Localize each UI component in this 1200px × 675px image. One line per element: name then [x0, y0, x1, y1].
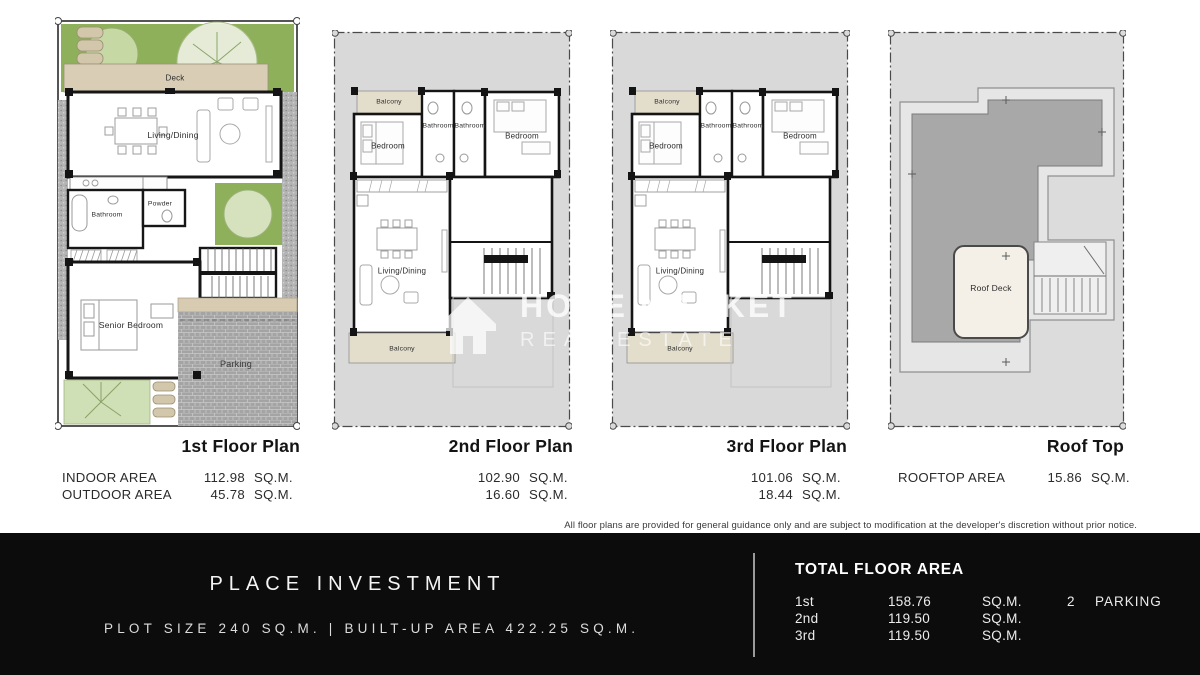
total-row-2nd: 2nd 119.50 SQ.M.: [795, 611, 1185, 628]
area-label: INDOOR AREA: [62, 470, 157, 485]
plan-1st-floor: Deck Living/Dining Powder Bathroom Senio…: [55, 14, 300, 430]
plan-title-1st: 1st Floor Plan: [90, 436, 300, 457]
room-label-balcony-bottom: Balcony: [389, 346, 415, 353]
area-line: 16.60 SQ.M.: [440, 486, 575, 503]
room-label-bedroom-left: Bedroom: [649, 142, 683, 151]
area-line: OUTDOOR AREA 45.78 SQ.M.: [62, 486, 300, 503]
floor-name: 3rd: [795, 628, 815, 643]
area-line: ROOFTOP AREA 15.86 SQ.M.: [898, 469, 1137, 486]
room-label-roof-deck: Roof Deck: [970, 283, 1011, 293]
room-label-deck: Deck: [165, 74, 184, 83]
room-label-bathroom-right: Bathroom: [732, 123, 763, 130]
area-value: 112.98: [204, 470, 245, 485]
area-block-1st: INDOOR AREA 112.98 SQ.M. OUTDOOR AREA 45…: [62, 469, 300, 503]
parking-count: 2: [1067, 594, 1075, 609]
area-label: OUTDOOR AREA: [62, 487, 172, 502]
area-unit: SQ.M.: [802, 470, 848, 485]
area-unit: SQ.M.: [529, 470, 575, 485]
floor-name: 2nd: [795, 611, 818, 626]
plan-2nd-floor: Balcony Bedroom Bathroom Bathroom Bedroo…: [332, 30, 572, 430]
room-label-balcony-bottom: Balcony: [667, 346, 693, 353]
total-row-3rd: 3rd 119.50 SQ.M.: [795, 628, 1185, 645]
floor-area-unit: SQ.M.: [982, 611, 1022, 626]
area-block-2nd: 102.90 SQ.M. 16.60 SQ.M.: [440, 469, 575, 503]
area-line: 101.06 SQ.M.: [713, 469, 848, 486]
brand-title: PLACE INVESTMENT: [95, 573, 620, 596]
area-value: 16.60: [485, 487, 520, 502]
footer-bar: PLACE INVESTMENT PLOT SIZE 240 SQ.M. | B…: [0, 533, 1200, 675]
area-value: 101.06: [751, 470, 793, 485]
room-label-senior-bedroom: Senior Bedroom: [99, 320, 163, 330]
area-unit: SQ.M.: [529, 487, 575, 502]
plan-roof-top: Roof Deck: [888, 30, 1126, 430]
floor-area-unit: SQ.M.: [982, 594, 1022, 609]
total-row-1st: 1st 158.76 SQ.M. 2 PARKING: [795, 594, 1185, 611]
plan-2nd-floor-drawing: [332, 30, 572, 430]
footer-divider: [753, 553, 755, 657]
area-line: INDOOR AREA 112.98 SQ.M.: [62, 469, 300, 486]
room-label-bathroom-right: Bathroom: [454, 123, 485, 130]
area-value: 15.86: [1047, 470, 1082, 485]
plan-3rd-floor-drawing: [610, 30, 850, 430]
room-label-living-dining: Living/Dining: [656, 267, 704, 276]
area-line: 18.44 SQ.M.: [713, 486, 848, 503]
area-block-3rd: 101.06 SQ.M. 18.44 SQ.M.: [713, 469, 848, 503]
area-unit: SQ.M.: [802, 487, 848, 502]
area-value: 102.90: [478, 470, 520, 485]
area-unit: SQ.M.: [254, 487, 300, 502]
disclaimer-text: All floor plans are provided for general…: [564, 520, 1137, 531]
room-label-parking: Parking: [220, 359, 252, 369]
room-label-bathroom: Bathroom: [91, 212, 122, 219]
plan-roof-top-drawing: [888, 30, 1126, 430]
total-floor-area-table: 1st 158.76 SQ.M. 2 PARKING 2nd 119.50 SQ…: [795, 594, 1185, 645]
floorplan-sheet: Deck Living/Dining Powder Bathroom Senio…: [0, 0, 1200, 675]
room-label-bathroom-left: Bathroom: [700, 123, 731, 130]
room-label-bathroom-left: Bathroom: [422, 123, 453, 130]
room-label-living-dining: Living/Dining: [378, 267, 426, 276]
floor-area-value: 158.76: [888, 594, 931, 609]
room-label-balcony-top: Balcony: [376, 99, 402, 106]
room-label-bedroom-left: Bedroom: [371, 142, 405, 151]
plan-title-2nd: 2nd Floor Plan: [363, 436, 573, 457]
total-floor-area-title: TOTAL FLOOR AREA: [795, 561, 964, 579]
floor-area-unit: SQ.M.: [982, 628, 1022, 643]
plot-info: PLOT SIZE 240 SQ.M. | BUILT-UP AREA 422.…: [104, 621, 639, 636]
room-label-powder: Powder: [148, 201, 172, 208]
area-block-roof: ROOFTOP AREA 15.86 SQ.M.: [898, 469, 1137, 486]
plan-title-3rd: 3rd Floor Plan: [637, 436, 847, 457]
parking-label: PARKING: [1095, 594, 1162, 609]
area-label: ROOFTOP AREA: [898, 470, 1005, 485]
area-value: 18.44: [758, 487, 793, 502]
room-label-bedroom-right: Bedroom: [505, 132, 539, 141]
floor-name: 1st: [795, 594, 814, 609]
area-value: 45.78: [210, 487, 245, 502]
floor-area-value: 119.50: [888, 611, 930, 626]
room-label-bedroom-right: Bedroom: [783, 132, 817, 141]
area-line: 102.90 SQ.M.: [440, 469, 575, 486]
floor-area-value: 119.50: [888, 628, 930, 643]
room-label-balcony-top: Balcony: [654, 99, 680, 106]
area-unit: SQ.M.: [1091, 470, 1137, 485]
plan-3rd-floor: Balcony Bedroom Bathroom Bathroom Bedroo…: [610, 30, 850, 430]
plan-title-roof: Roof Top: [914, 436, 1124, 457]
room-label-living-dining: Living/Dining: [147, 130, 198, 140]
area-unit: SQ.M.: [254, 470, 300, 485]
